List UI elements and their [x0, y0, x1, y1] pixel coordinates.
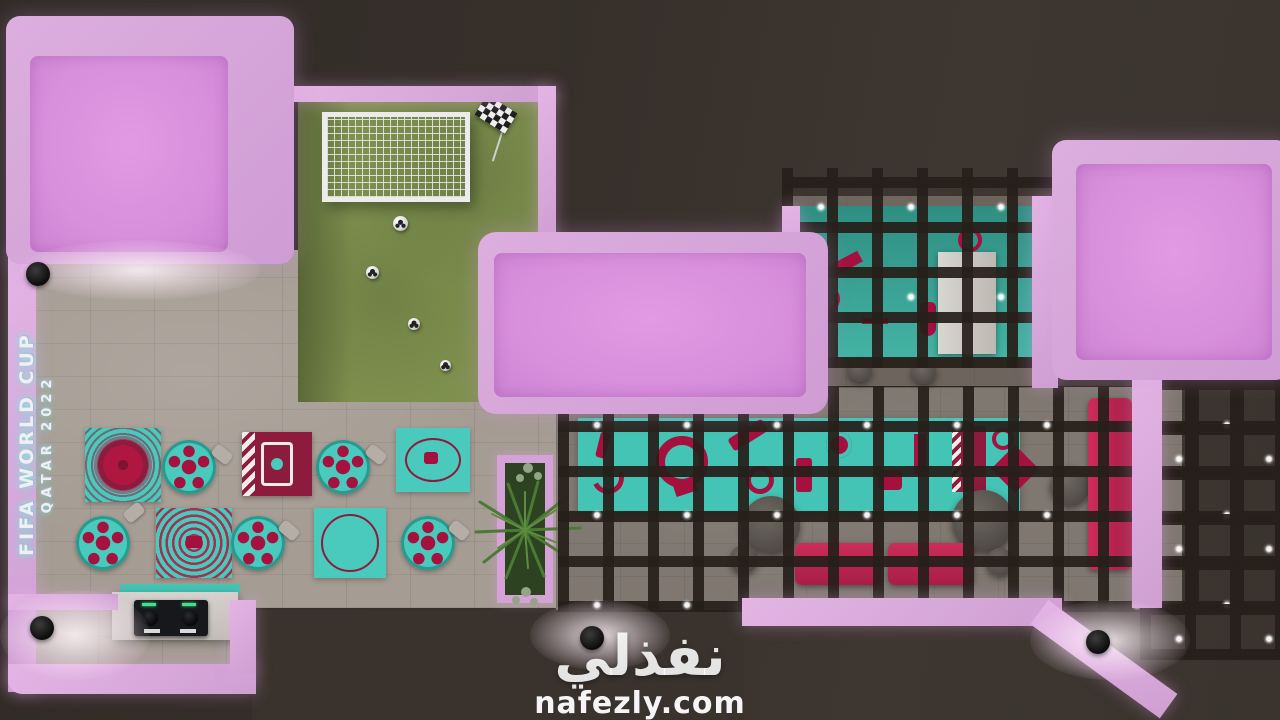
light-glow: [20, 240, 260, 300]
wall-sign-line1: FIFA WORLD CUP: [16, 300, 38, 588]
wall-grass-right: [538, 86, 556, 248]
watermark-arabic: نفذلي: [0, 624, 1280, 689]
rug-oval-net: [396, 428, 470, 492]
flag-serrated-edge: [242, 432, 255, 496]
soccer-ball: [366, 266, 379, 279]
rug-mandala: [85, 428, 161, 502]
rug-qatar-flag: [242, 432, 312, 496]
soccer-ball: [440, 360, 451, 371]
skylight-panel: [1076, 164, 1272, 360]
football-table: [231, 516, 285, 570]
football-table: [316, 440, 370, 494]
wall-sign: FIFA WORLD CUP QATAR 2022: [12, 300, 68, 590]
rug-spirograph: [156, 508, 232, 578]
soccer-ball: [408, 318, 420, 330]
skylight-box-top-left: [6, 16, 294, 264]
soccer-ball: [393, 216, 408, 231]
scene-canvas: FIFA WORLD CUP QATAR 2022 نفذلي nafezly.…: [0, 0, 1280, 720]
skylight-panel: [30, 56, 228, 252]
wall-bottom-mid: [742, 598, 1062, 626]
skylight-panel: [494, 253, 806, 397]
football-table: [162, 440, 216, 494]
soccer-goal: [322, 112, 470, 202]
football-table: [76, 516, 130, 570]
rug-circle: [314, 508, 386, 578]
wall-lounge-right: [1132, 376, 1162, 608]
football-table: [401, 516, 455, 570]
skylight-box-middle: [478, 232, 828, 414]
skylight-box-top-right: [1052, 140, 1280, 380]
wall-sign-line2: QATAR 2022: [40, 300, 55, 588]
pitch-center: [271, 458, 283, 470]
spotlight-icon: [26, 262, 50, 286]
wall-grass-top: [294, 86, 556, 102]
watermark-site: nafezly.com: [0, 686, 1280, 720]
